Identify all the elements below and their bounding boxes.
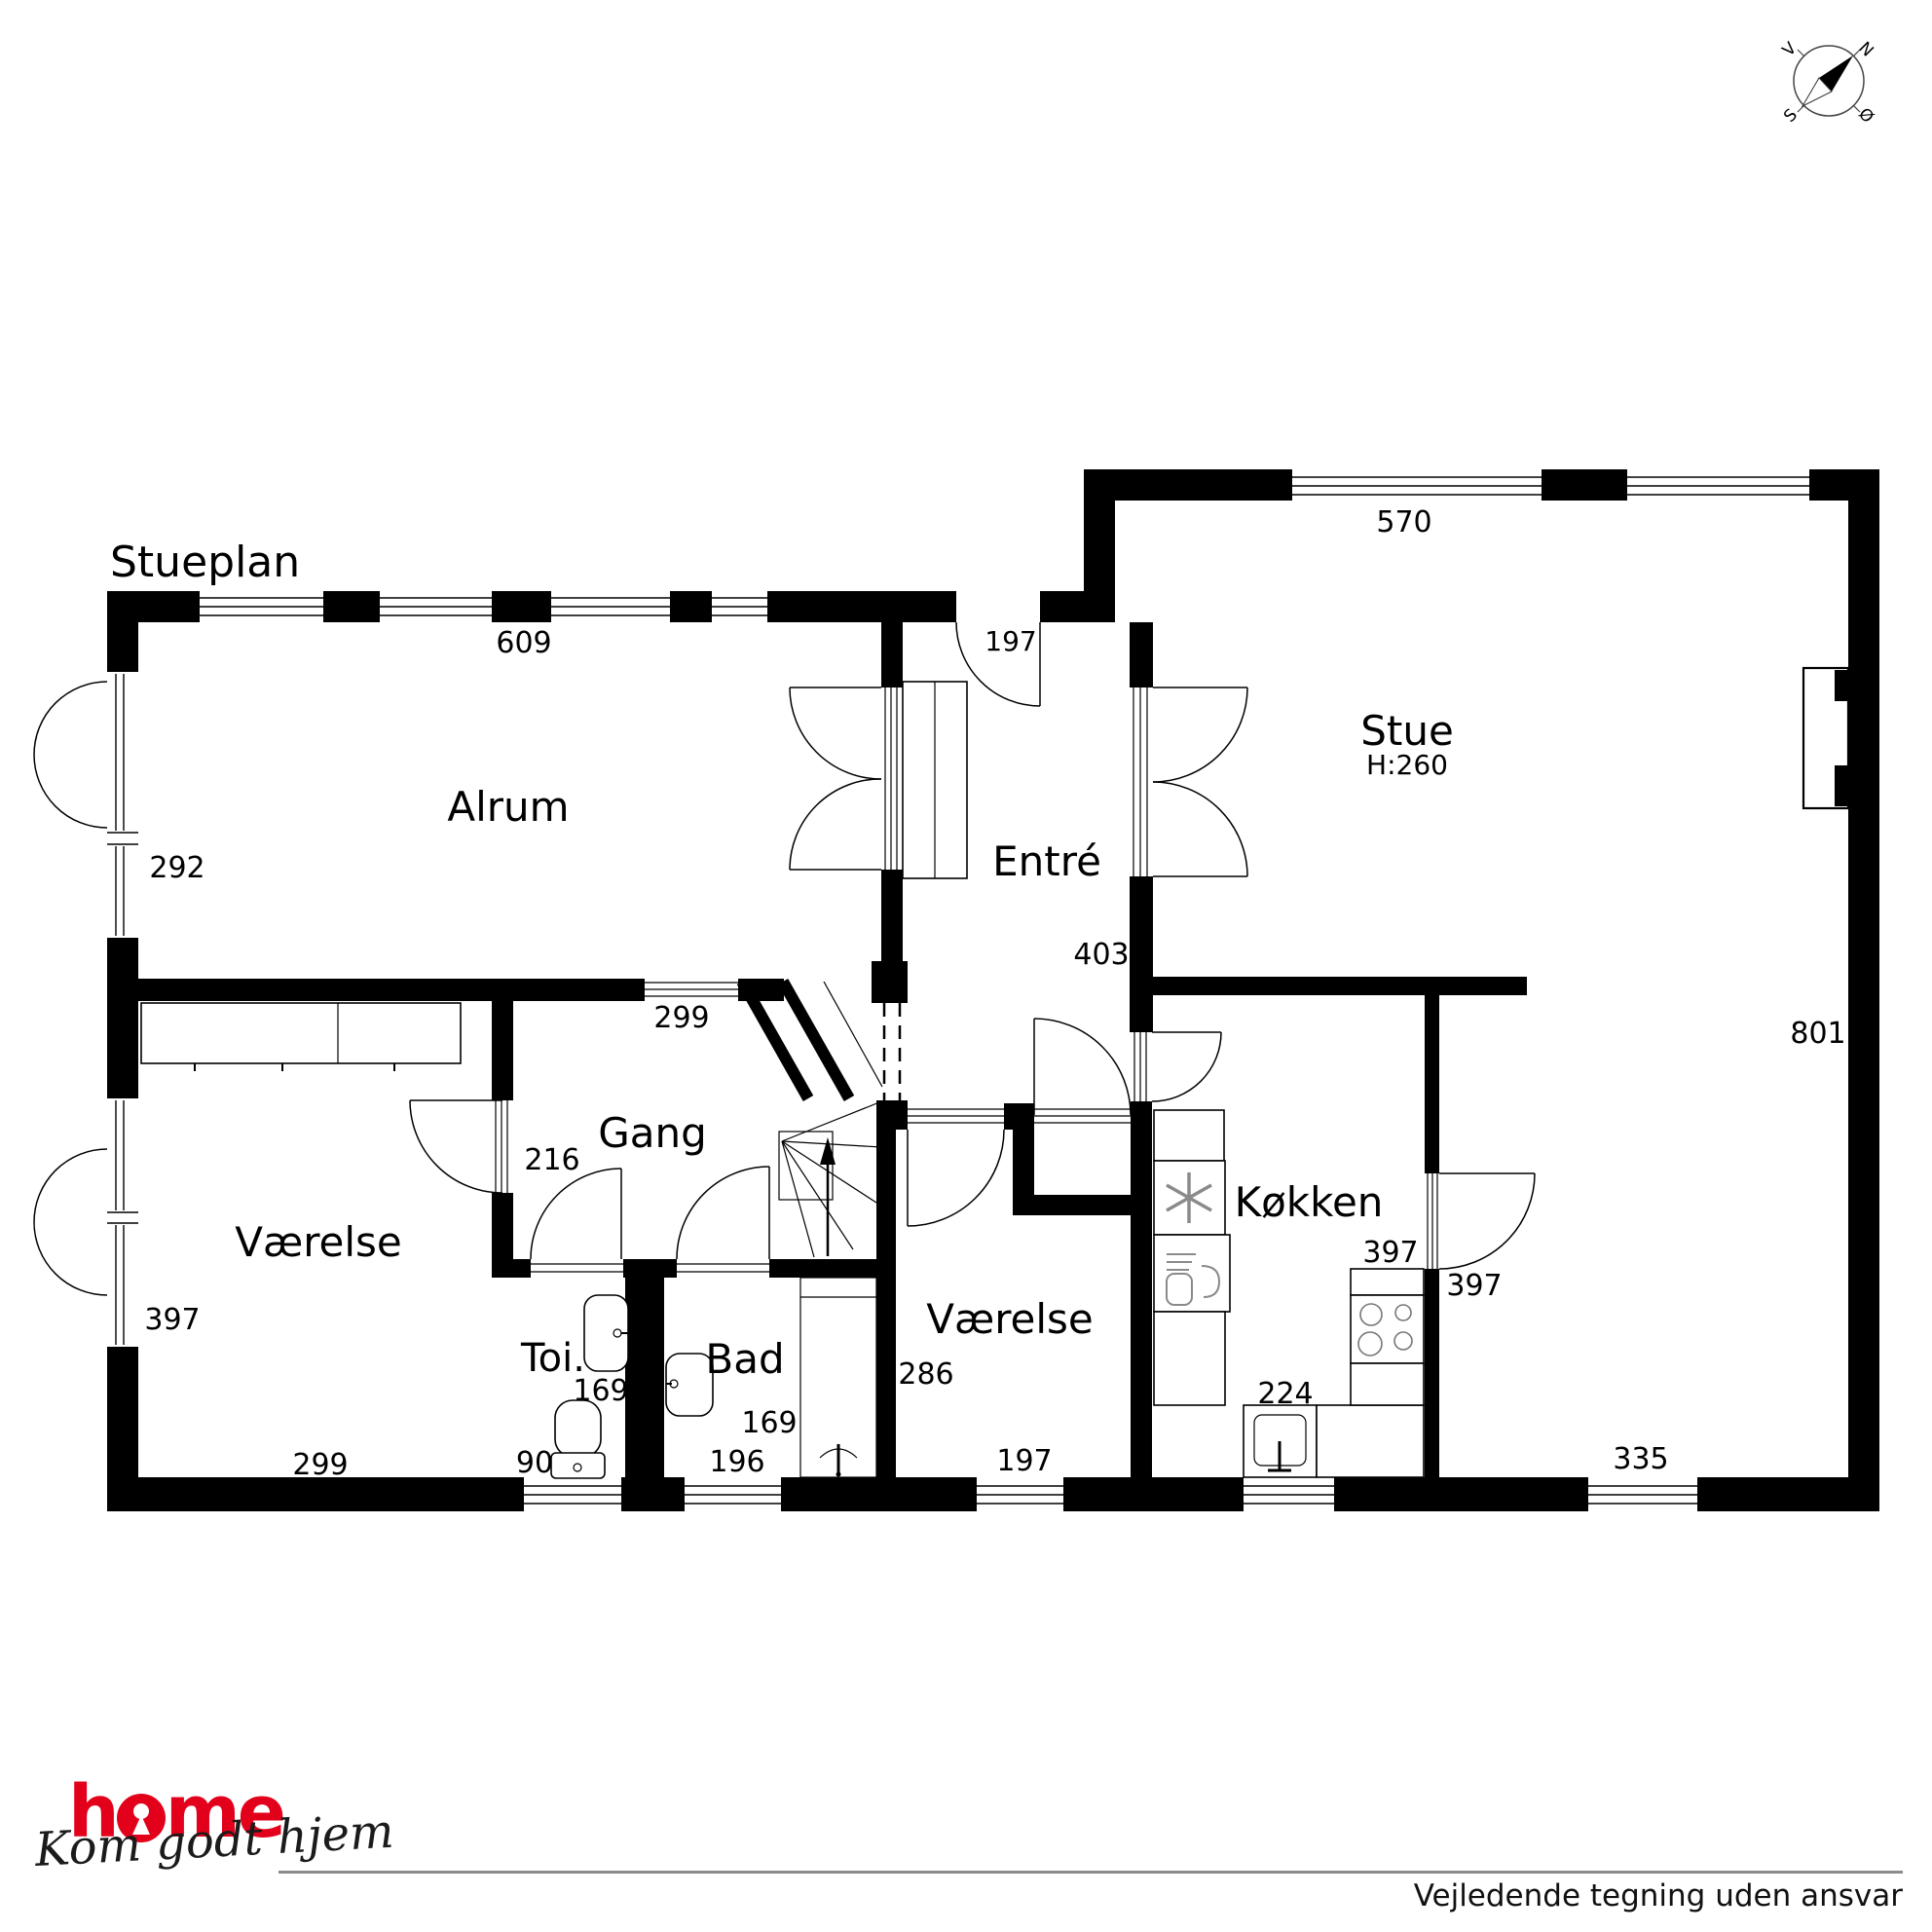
window-casement-arc [34,682,107,755]
dim-vaerelse-mid-depth: 286 [898,1357,953,1392]
dim-gang-opening: 299 [653,1001,709,1035]
compass-west-label: V [1779,39,1802,61]
dim-koekken-door: 397 [1362,1236,1418,1270]
dim-gang-width: 216 [524,1143,579,1177]
dim-stue-top: 570 [1376,505,1431,539]
disclaimer-text: Vejledende tegning uden ansvar [1414,1878,1903,1913]
dim-dining-width: 397 [1446,1269,1502,1303]
dim-koekken-counter: 224 [1257,1377,1313,1411]
dim-vaerelse-mid-width: 197 [996,1444,1052,1478]
staircase [742,982,882,1257]
floor-plan-canvas: V N S Ø Stueplan Alrum Entré Stue H:260 … [0,0,1932,1932]
furniture [141,668,1848,1478]
footer-divider [279,1871,1903,1874]
dim-alrum-left: 292 [149,851,204,885]
compass-east-label: Ø [1854,104,1877,128]
room-label-vaerelse-left: Værelse [235,1218,402,1266]
compass-north-label: N [1854,38,1876,60]
room-height-stue: H:260 [1366,749,1448,781]
dim-stue-right: 801 [1790,1017,1845,1051]
room-label-alrum: Alrum [447,783,569,831]
dim-toi-width: 90 [516,1446,553,1480]
kitchen-counter [1154,1110,1224,1161]
compass-south-label: S [1780,105,1802,127]
kitchen-stove [1351,1295,1424,1363]
wardrobe-left-bedroom [141,1003,461,1063]
room-label-vaerelse-mid: Værelse [926,1295,1094,1343]
dim-vaerelse-left-bottom: 299 [292,1448,348,1482]
dim-alrum-top: 609 [496,626,551,660]
dim-entre-width: 403 [1073,938,1129,972]
dim-bad-depth: 169 [741,1406,797,1440]
room-label-gang: Gang [598,1109,707,1157]
room-label-entre: Entré [992,837,1101,885]
dim-vaerelse-left-width: 397 [144,1303,200,1337]
toilet [555,1400,601,1457]
dim-front-door: 197 [985,625,1036,657]
plan-title: Stueplan [110,538,300,587]
room-label-koekken: Køkken [1235,1178,1384,1226]
compass: V N S Ø [1779,38,1877,127]
dim-bad-width: 196 [709,1445,764,1479]
room-label-bad: Bad [705,1335,784,1383]
dim-stue-bottom-window: 335 [1613,1442,1668,1476]
dim-toi-depth: 169 [573,1374,628,1408]
room-label-stue: Stue [1360,707,1454,755]
